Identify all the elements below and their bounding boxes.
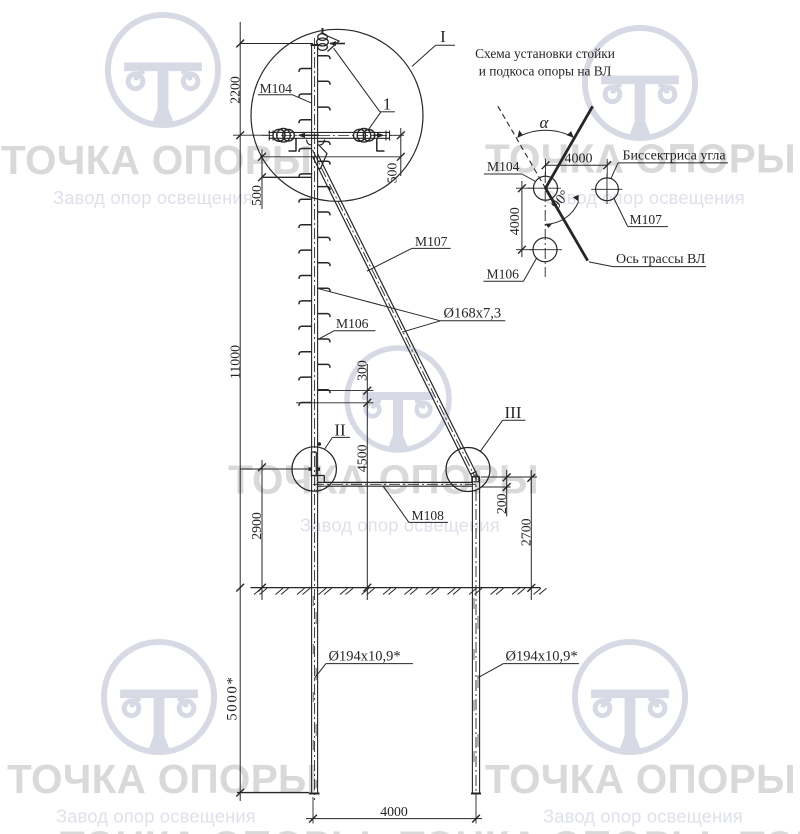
svg-text:ТОЧКА ОПОРЫ: ТОЧКА ОПОРЫ xyxy=(1,137,312,183)
svg-text:5000*: 5000* xyxy=(224,675,240,720)
svg-text:и подкоса опоры на ВЛ: и подкоса опоры на ВЛ xyxy=(479,64,612,79)
svg-text:М104: М104 xyxy=(260,81,293,96)
svg-text:М106: М106 xyxy=(487,267,520,282)
svg-text:III: III xyxy=(505,403,522,422)
svg-text:4000: 4000 xyxy=(565,151,593,166)
svg-text:Ø194х10,9*: Ø194х10,9* xyxy=(329,649,401,665)
svg-text:11000: 11000 xyxy=(227,345,242,379)
svg-text:М104: М104 xyxy=(487,159,520,174)
svg-text:Ось трассы ВЛ: Ось трассы ВЛ xyxy=(616,252,706,267)
svg-text:ТОЧКА ОПОРЫ: ТОЧКА ОПОРЫ xyxy=(7,756,318,802)
svg-text:ТОЧКА ОПОРЫ: ТОЧКА ОПОРЫ xyxy=(60,823,371,834)
svg-text:Ø194х10,9*: Ø194х10,9* xyxy=(506,649,578,665)
svg-text:4000: 4000 xyxy=(380,804,408,819)
svg-text:М107: М107 xyxy=(415,234,448,249)
svg-text:II: II xyxy=(334,420,346,439)
svg-text:500: 500 xyxy=(249,185,264,206)
svg-text:2200: 2200 xyxy=(227,76,242,104)
svg-text:М107: М107 xyxy=(630,212,663,227)
svg-text:200: 200 xyxy=(494,493,509,514)
svg-text:Биссектриса угла: Биссектриса угла xyxy=(623,149,727,164)
svg-text:ТОЧКА ОПОРЫ: ТОЧКА ОПОРЫ xyxy=(400,823,711,834)
svg-text:Ø168х7,3: Ø168х7,3 xyxy=(444,306,502,322)
svg-text:Завод опор освещения: Завод опор освещения xyxy=(53,187,253,208)
svg-text:4500: 4500 xyxy=(355,444,370,472)
svg-text:М106: М106 xyxy=(336,316,369,331)
svg-text:ТОЧКА ОПОРЫ: ТОЧКА ОПОРЫ xyxy=(740,823,800,834)
svg-text:ТОЧКА ОПОРЫ: ТОЧКА ОПОРЫ xyxy=(485,756,796,802)
svg-text:300: 300 xyxy=(355,360,370,381)
svg-text:α: α xyxy=(540,113,550,132)
svg-text:2700: 2700 xyxy=(519,518,534,546)
svg-text:500: 500 xyxy=(385,163,400,184)
svg-text:М108: М108 xyxy=(412,508,445,523)
svg-text:I: I xyxy=(440,27,446,46)
svg-text:4000: 4000 xyxy=(508,207,523,235)
svg-text:Завод опор освещения: Завод опор освещения xyxy=(300,515,500,536)
svg-text:ТОЧКА ОПОРЫ: ТОЧКА ОПОРЫ xyxy=(228,457,539,503)
svg-text:1: 1 xyxy=(383,95,392,114)
svg-text:Схема установки стойки: Схема установки стойки xyxy=(475,46,615,61)
svg-text:2900: 2900 xyxy=(249,512,264,540)
